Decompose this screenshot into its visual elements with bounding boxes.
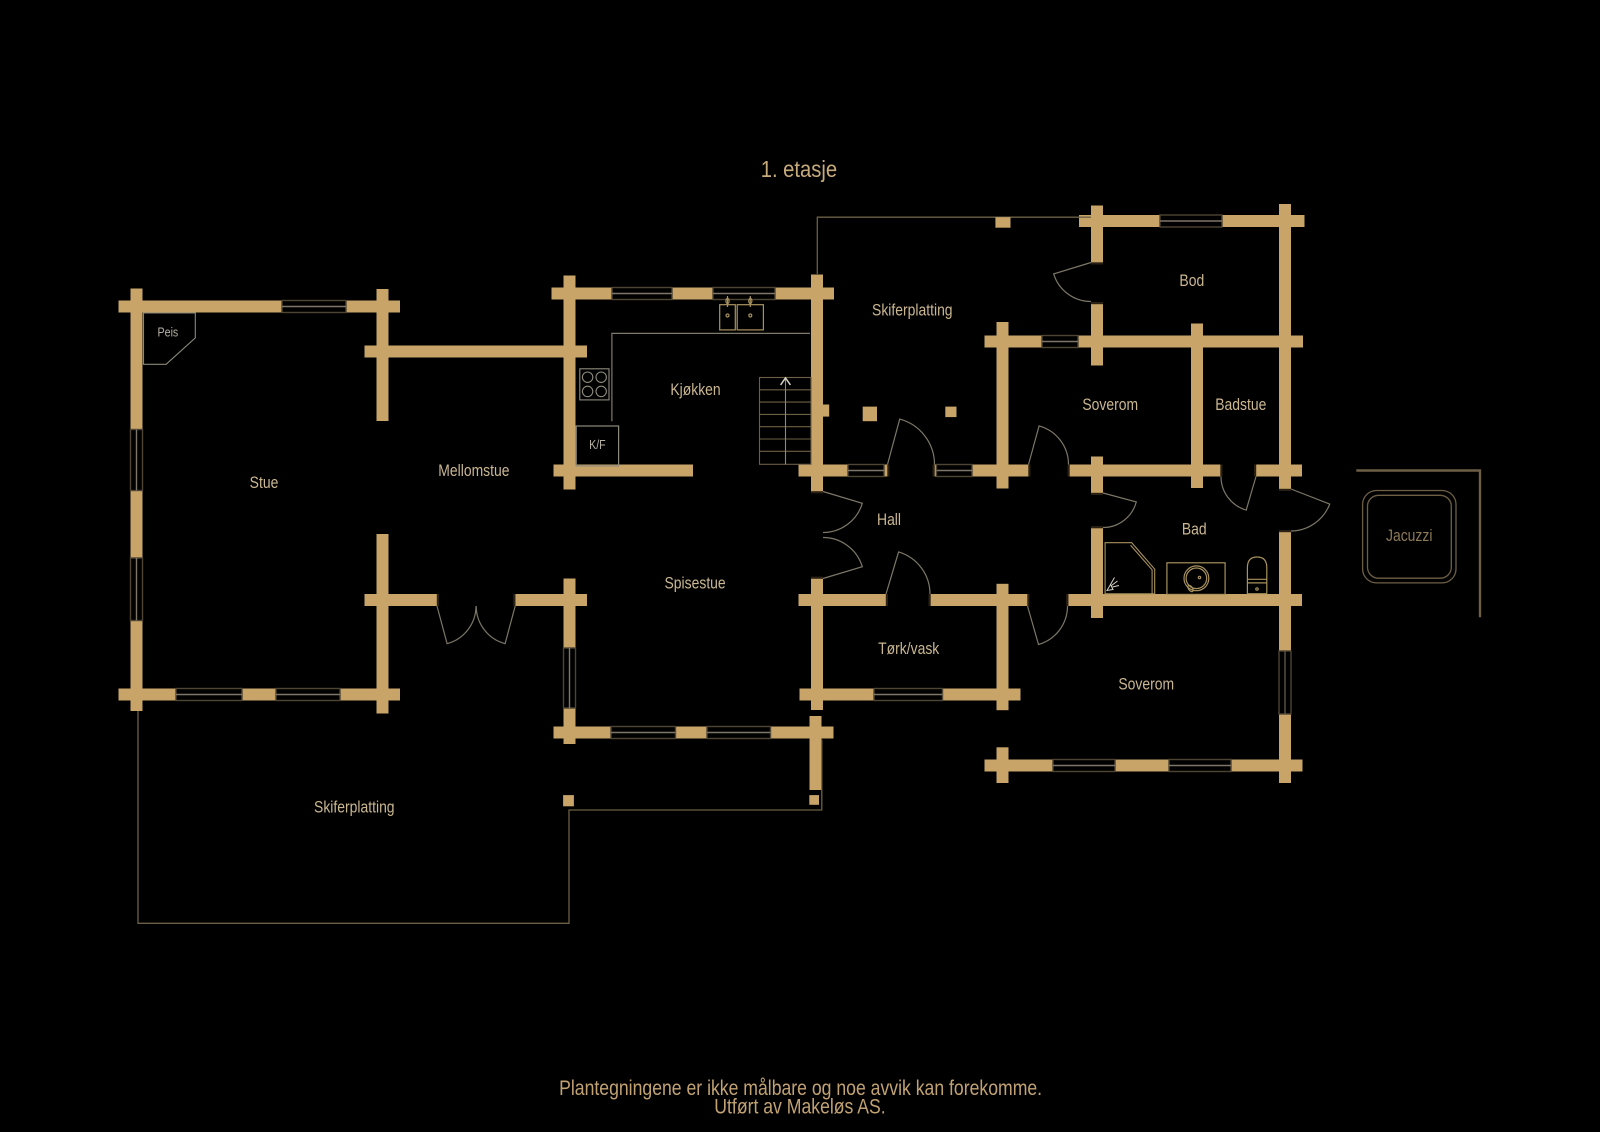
- svg-text:Utført av Makeløs AS.: Utført av Makeløs AS.: [714, 1095, 885, 1119]
- svg-text:Tørk/vask: Tørk/vask: [878, 640, 939, 659]
- svg-text:Skiferplatting: Skiferplatting: [314, 798, 395, 817]
- svg-text:Kjøkken: Kjøkken: [670, 381, 720, 400]
- svg-text:Skiferplatting: Skiferplatting: [872, 301, 953, 320]
- svg-text:Hall: Hall: [877, 511, 901, 530]
- svg-text:Jacuzzi: Jacuzzi: [1386, 527, 1432, 546]
- svg-text:Spisestue: Spisestue: [665, 574, 726, 593]
- svg-text:Peis: Peis: [158, 324, 179, 339]
- svg-text:K/F: K/F: [589, 437, 606, 452]
- svg-text:Badstue: Badstue: [1215, 396, 1266, 415]
- svg-text:Soverom: Soverom: [1082, 396, 1138, 415]
- svg-text:Bad: Bad: [1182, 520, 1207, 539]
- svg-text:Stue: Stue: [250, 474, 279, 493]
- svg-text:1. etasje: 1. etasje: [761, 156, 837, 183]
- svg-text:Mellomstue: Mellomstue: [438, 462, 509, 481]
- svg-text:Soverom: Soverom: [1118, 675, 1174, 694]
- svg-text:Bod: Bod: [1179, 272, 1204, 291]
